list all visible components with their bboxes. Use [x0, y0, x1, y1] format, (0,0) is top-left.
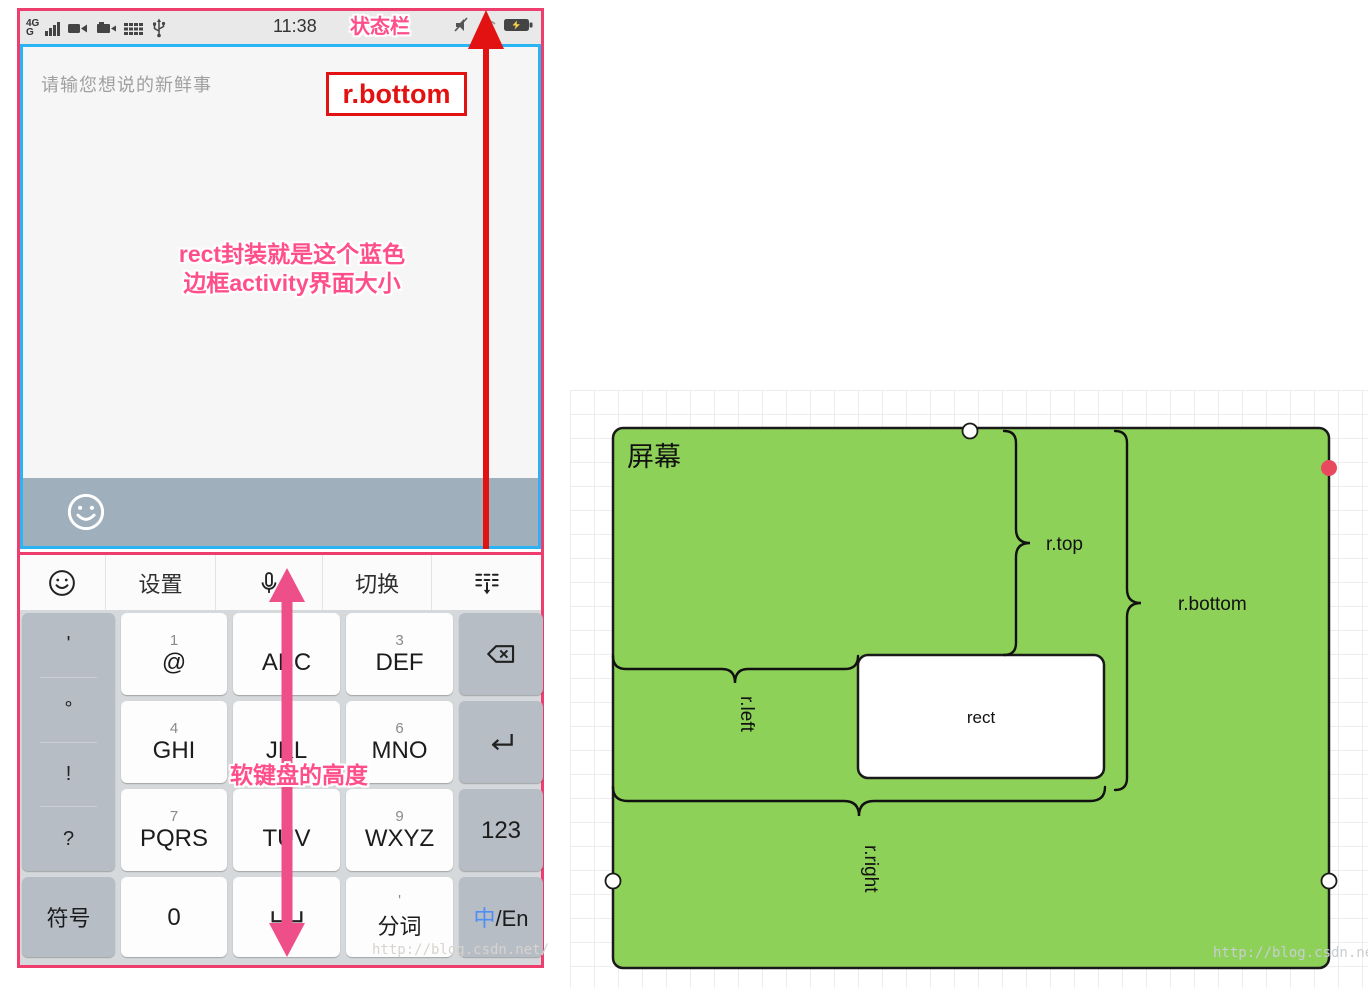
switch-button[interactable]: 切换: [322, 555, 432, 610]
key-9-wxyz[interactable]: 9 WXYZ: [346, 789, 453, 871]
keyboard-toolbar: 设置 切换: [20, 555, 541, 610]
handle-right[interactable]: [1322, 874, 1337, 889]
status-bar-clock: 11:38: [273, 16, 317, 37]
signal-bars-icon: [45, 19, 61, 37]
r-left-label: r.left: [736, 696, 757, 733]
video-camera-icon: [67, 18, 89, 38]
r-top-label: r.top: [1046, 534, 1083, 555]
wifi-icon: [478, 16, 498, 34]
key-8-tuv[interactable]: 8 TUV: [233, 789, 340, 871]
keyboard-height-annotation: 软键盘的高度: [230, 756, 368, 790]
switch-label: 切换: [355, 567, 399, 599]
camera-icon: [95, 18, 117, 38]
key-1-at[interactable]: 1 @: [121, 613, 227, 695]
screenshot-stage: 4G G: [0, 0, 1368, 988]
watermark-right: http://blog.csdn.net/: [1213, 945, 1368, 961]
key-2-abc[interactable]: 2 ABC: [233, 613, 340, 695]
symbol-key[interactable]: °: [22, 678, 115, 742]
watermark-left: http://blog.csdn.net/: [372, 942, 549, 958]
microphone-icon: [255, 569, 283, 597]
usb-icon: [151, 18, 167, 38]
status-bar: 4G G: [20, 11, 541, 44]
numbers-key[interactable]: 123: [459, 789, 543, 871]
battery-icon: [503, 16, 533, 34]
key-3-def[interactable]: 3 DEF: [346, 613, 453, 695]
backspace-icon: [484, 641, 518, 667]
handle-left[interactable]: [606, 874, 621, 889]
signal-icon: 4G G: [26, 19, 39, 37]
key-7-pqrs[interactable]: 7 PQRS: [121, 789, 227, 871]
space-icon: [267, 906, 307, 928]
input-accessory-bar: [23, 478, 538, 546]
voice-input-button[interactable]: [215, 555, 322, 610]
enter-icon: [485, 729, 517, 755]
sim2-label: G: [26, 28, 39, 37]
symbol-key[interactable]: ': [22, 613, 115, 677]
emoji-button[interactable]: [20, 555, 105, 610]
numbers-label: 123: [481, 817, 521, 844]
r-bottom-label-box: r.bottom: [326, 72, 467, 116]
key-0[interactable]: 0: [121, 877, 227, 957]
punctuation-column[interactable]: ' ° ! ?: [22, 613, 115, 871]
hide-keyboard-button[interactable]: [431, 555, 541, 610]
rect-label: rect: [967, 708, 996, 727]
rect-explanation-note: rect封装就是这个蓝色 边框activity界面大小: [172, 240, 412, 298]
mute-icon: [453, 15, 473, 35]
symbols-key[interactable]: 符号: [22, 877, 115, 957]
keyboard-icon: [123, 19, 145, 37]
phone-screenshot: 4G G: [17, 8, 544, 968]
post-input-placeholder[interactable]: 请输您想说的新鲜事: [41, 71, 212, 97]
r-right-label: r.right: [860, 845, 881, 893]
red-connection-dot[interactable]: [1321, 460, 1337, 476]
rect-coordinates-diagram: 屏幕 rect r.top r.bottom r.left r.right: [570, 390, 1368, 988]
symbol-key[interactable]: ?: [22, 807, 115, 871]
hide-keyboard-icon: [472, 570, 502, 596]
handle-top[interactable]: [963, 424, 978, 439]
screen-label: 屏幕: [627, 442, 681, 472]
emoji-smiley-icon[interactable]: [65, 491, 107, 533]
enter-key[interactable]: [459, 701, 543, 783]
smiley-icon: [47, 568, 77, 598]
status-bar-annotation: 状态栏: [350, 10, 410, 39]
settings-button[interactable]: 设置: [105, 555, 216, 610]
r-bottom-label: r.bottom: [1178, 594, 1247, 615]
diagram-canvas: 屏幕 rect r.top r.bottom r.left r.right: [570, 390, 1368, 988]
symbol-key[interactable]: !: [22, 743, 115, 807]
r-bottom-label: r.bottom: [343, 79, 451, 110]
backspace-key[interactable]: [459, 613, 543, 695]
space-key[interactable]: [233, 877, 340, 957]
settings-label: 设置: [138, 567, 182, 599]
key-4-ghi[interactable]: 4 GHI: [121, 701, 227, 783]
